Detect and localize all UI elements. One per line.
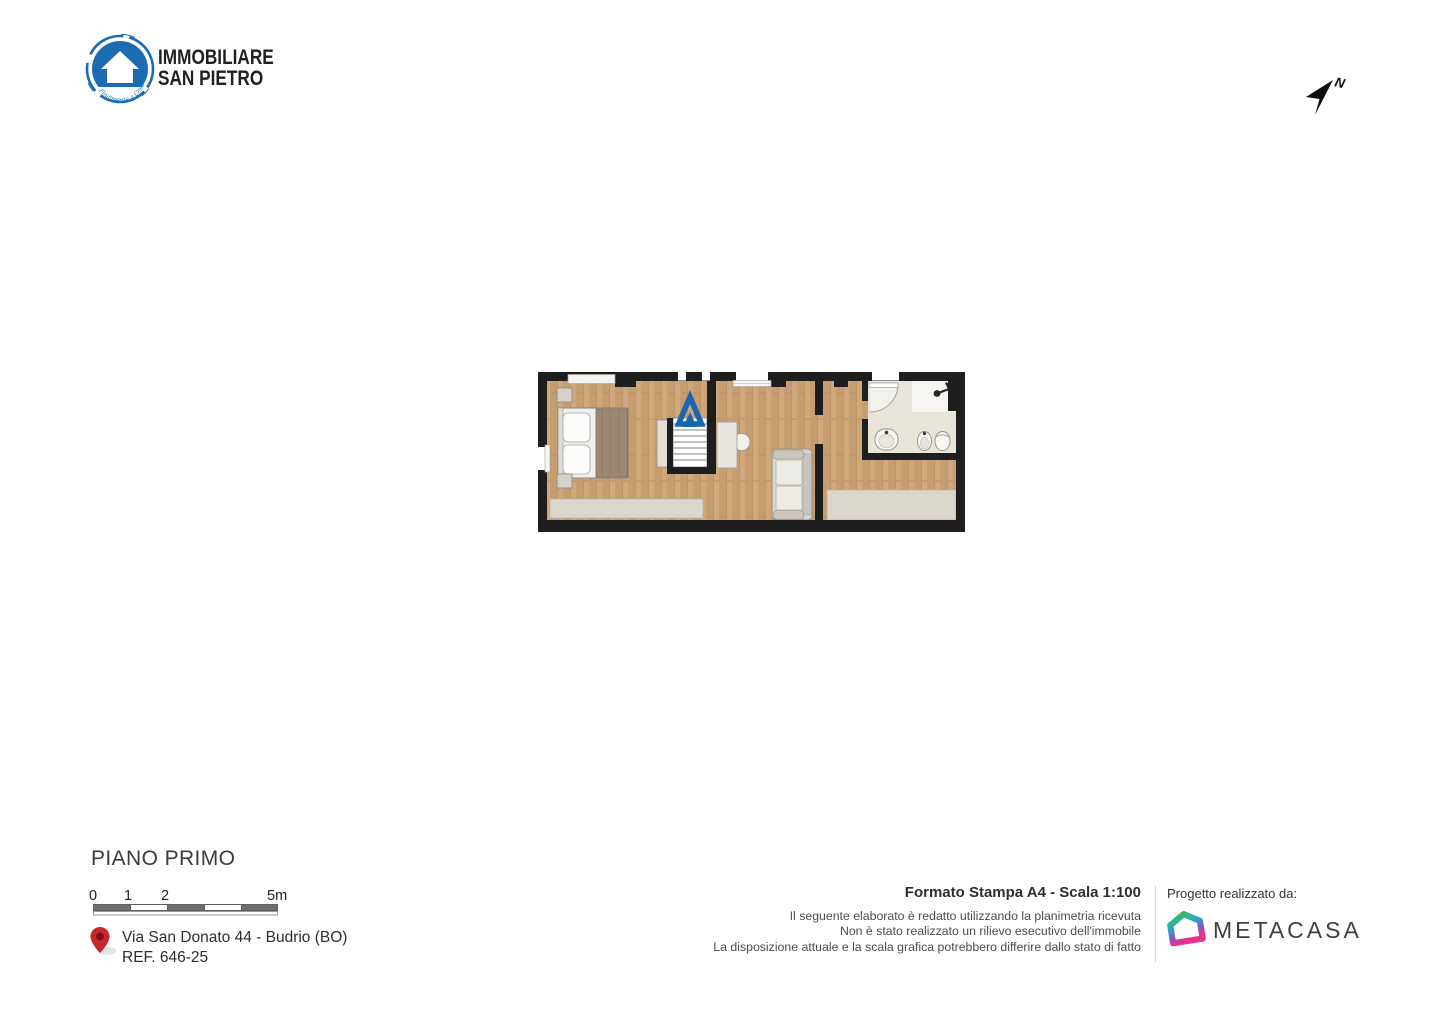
bathroom-door-leaf	[869, 383, 898, 388]
agency-logo-text: IMMOBILIARE SAN PIETRO	[158, 48, 274, 89]
credit-label: Progetto realizzato da:	[1167, 886, 1297, 901]
scale-label-1: 1	[124, 888, 132, 904]
agency-logo-icon: Finalmente a Casa	[83, 32, 157, 108]
location-pin-icon	[89, 926, 119, 958]
blanket	[596, 409, 628, 477]
terrace-left	[550, 499, 703, 518]
bidet	[918, 432, 932, 451]
print-format-scale: Formato Stampa A4 - Scala 1:100	[661, 884, 1141, 901]
metacasa-logo-icon	[1165, 908, 1207, 950]
nightstand	[557, 474, 572, 488]
pillow	[563, 413, 590, 442]
scale-label-0: 0	[89, 888, 97, 904]
nightstand	[557, 388, 572, 402]
north-label: N	[1333, 74, 1346, 91]
print-info-block: Formato Stampa A4 - Scala 1:100 Il segue…	[661, 884, 1141, 955]
disclaimer: Il seguente elaborato è redatto utilizza…	[661, 909, 1141, 955]
double-bed	[558, 408, 628, 478]
sofa	[772, 449, 812, 520]
toilet	[935, 432, 950, 451]
desk	[717, 422, 737, 468]
scale-label-5m: 5m	[267, 888, 287, 904]
address-line: Via San Donato 44 - Budrio (BO)	[122, 929, 347, 947]
disclaimer-line: Il seguente elaborato è redatto utilizza…	[661, 909, 1141, 924]
scale-bar	[93, 904, 278, 916]
sink	[875, 429, 898, 450]
footer-divider	[1155, 886, 1156, 962]
page: Finalmente a Casa IMMOBILIARE SAN PIETRO…	[0, 0, 1440, 1018]
disclaimer-line: La disposizione attuale e la scala grafi…	[661, 940, 1141, 955]
reference-number: REF. 646-25	[122, 949, 208, 967]
page-title: PIANO PRIMO	[91, 847, 235, 871]
terrace-right	[827, 490, 956, 520]
credit-brand-name: METACASA	[1213, 917, 1362, 944]
disclaimer-line: Non è stato realizzato un rilievo esecut…	[661, 924, 1141, 939]
pillow	[563, 445, 590, 474]
scale-label-2: 2	[161, 888, 169, 904]
logo-line2: SAN PIETRO	[158, 69, 274, 90]
north-arrow-icon: N	[1302, 70, 1350, 122]
floor-plan	[538, 372, 965, 532]
logo-line1: IMMOBILIARE	[158, 48, 274, 69]
